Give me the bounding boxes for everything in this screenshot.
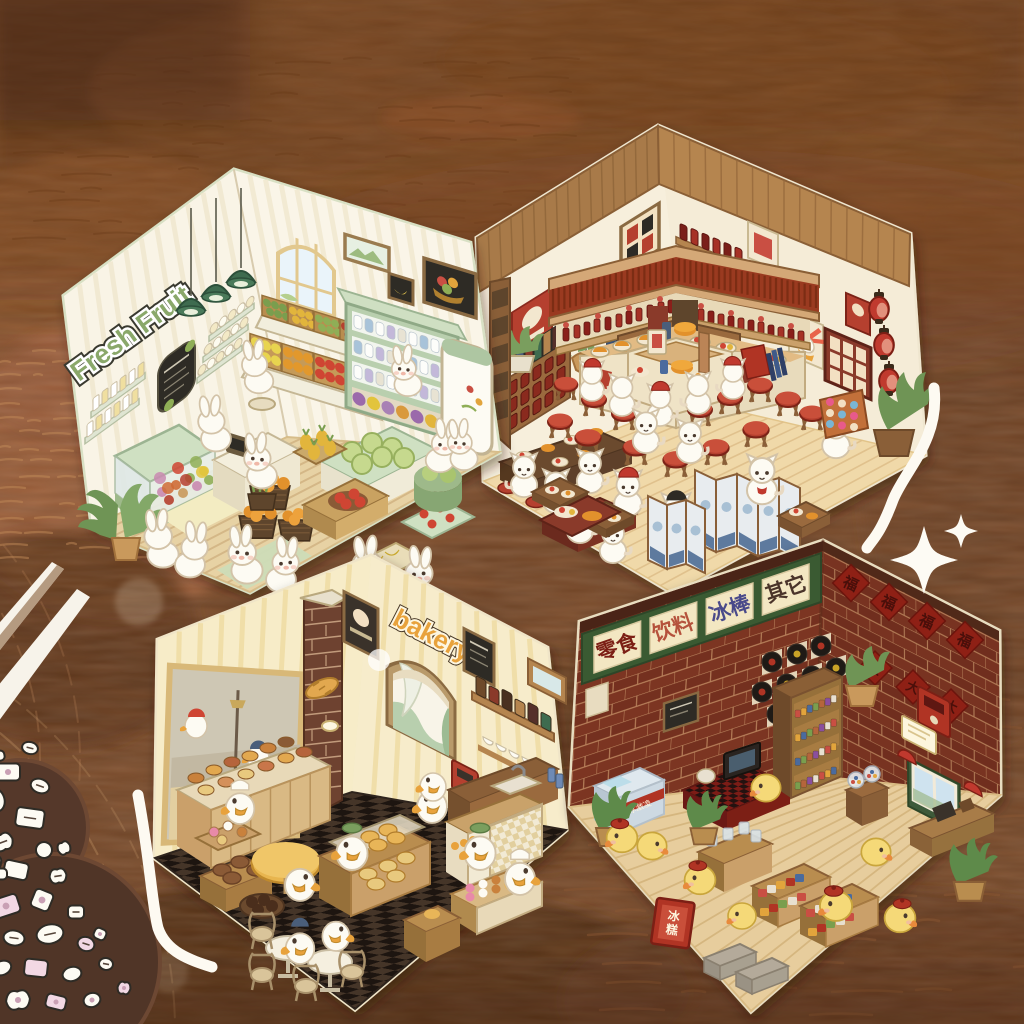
svg-text:糕: 糕 (664, 921, 679, 938)
